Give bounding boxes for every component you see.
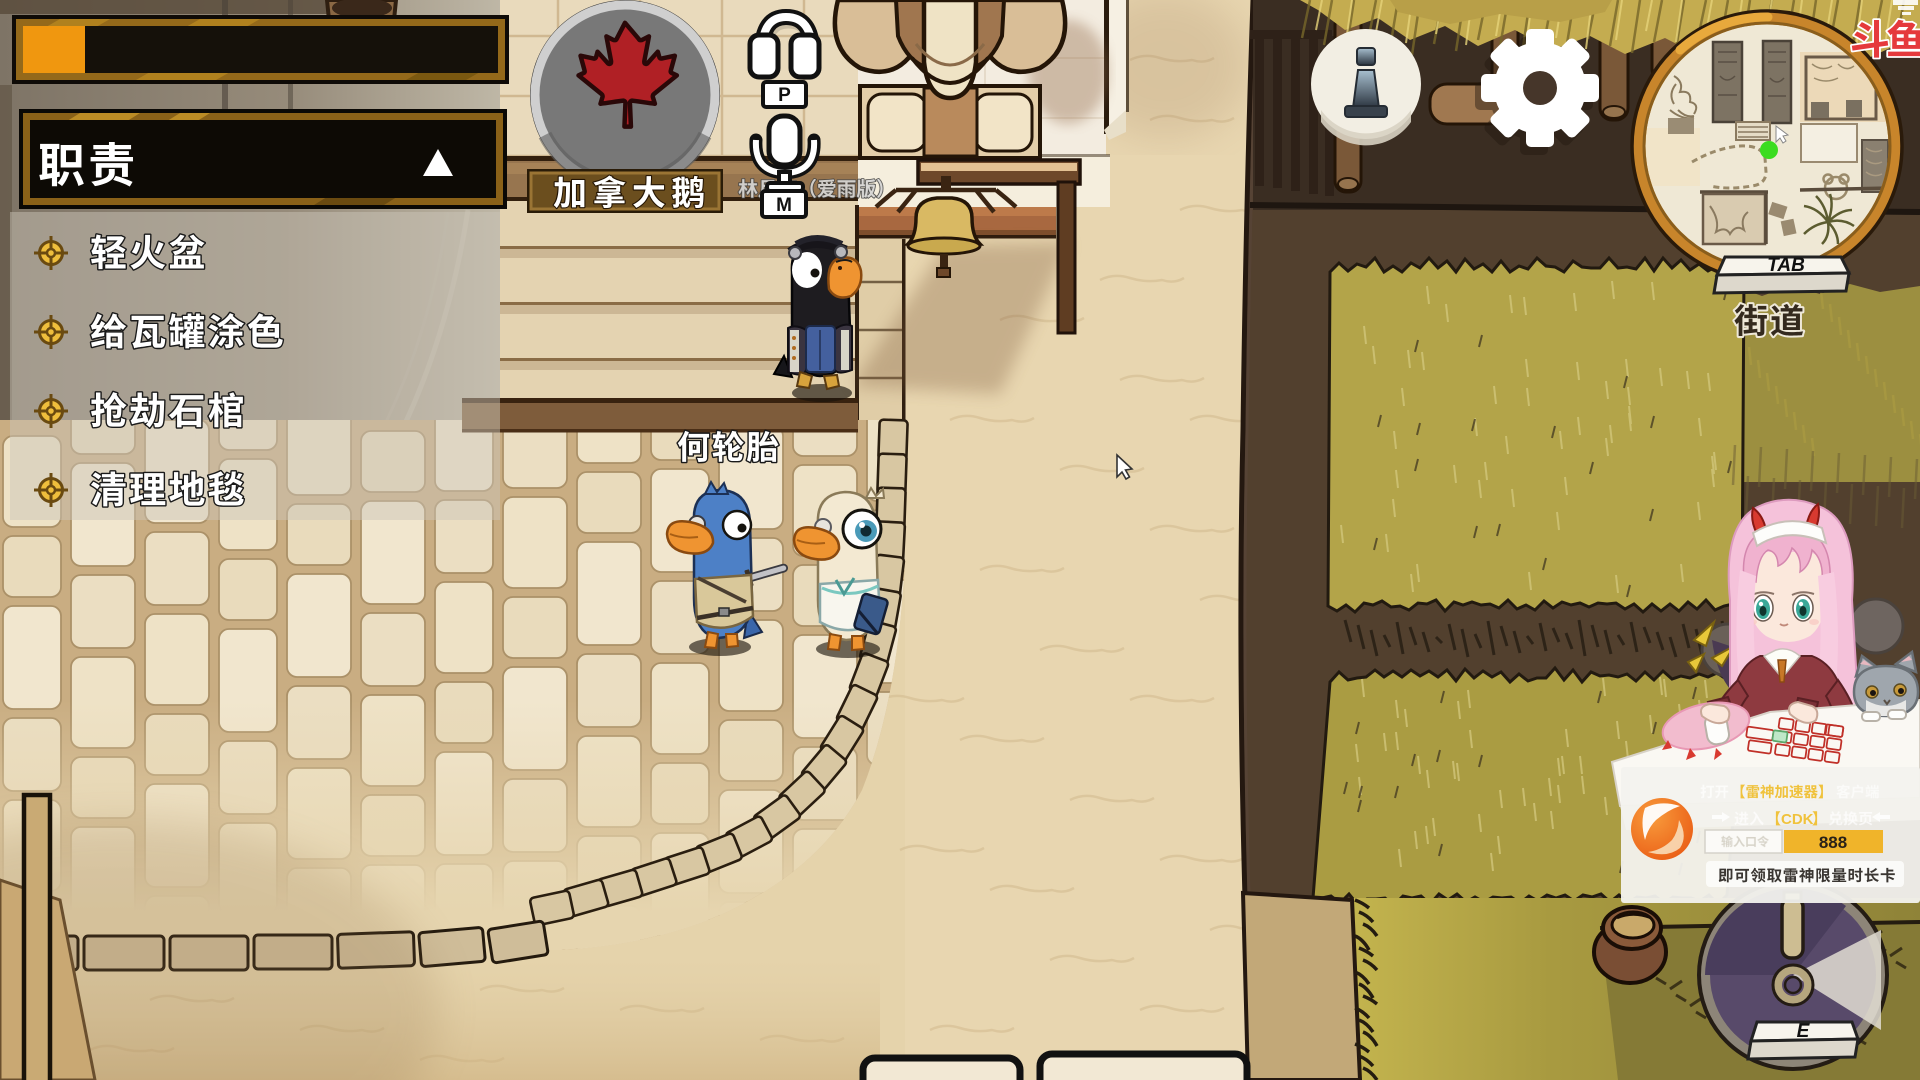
svg-text:M: M (776, 195, 792, 216)
svg-text:E: E (1797, 1021, 1811, 1042)
svg-text:888: 888 (1819, 833, 1847, 852)
svg-text:TAB: TAB (1767, 255, 1805, 276)
svg-text:P: P (778, 85, 791, 106)
svg-text:CDK: CDK (1781, 811, 1814, 828)
